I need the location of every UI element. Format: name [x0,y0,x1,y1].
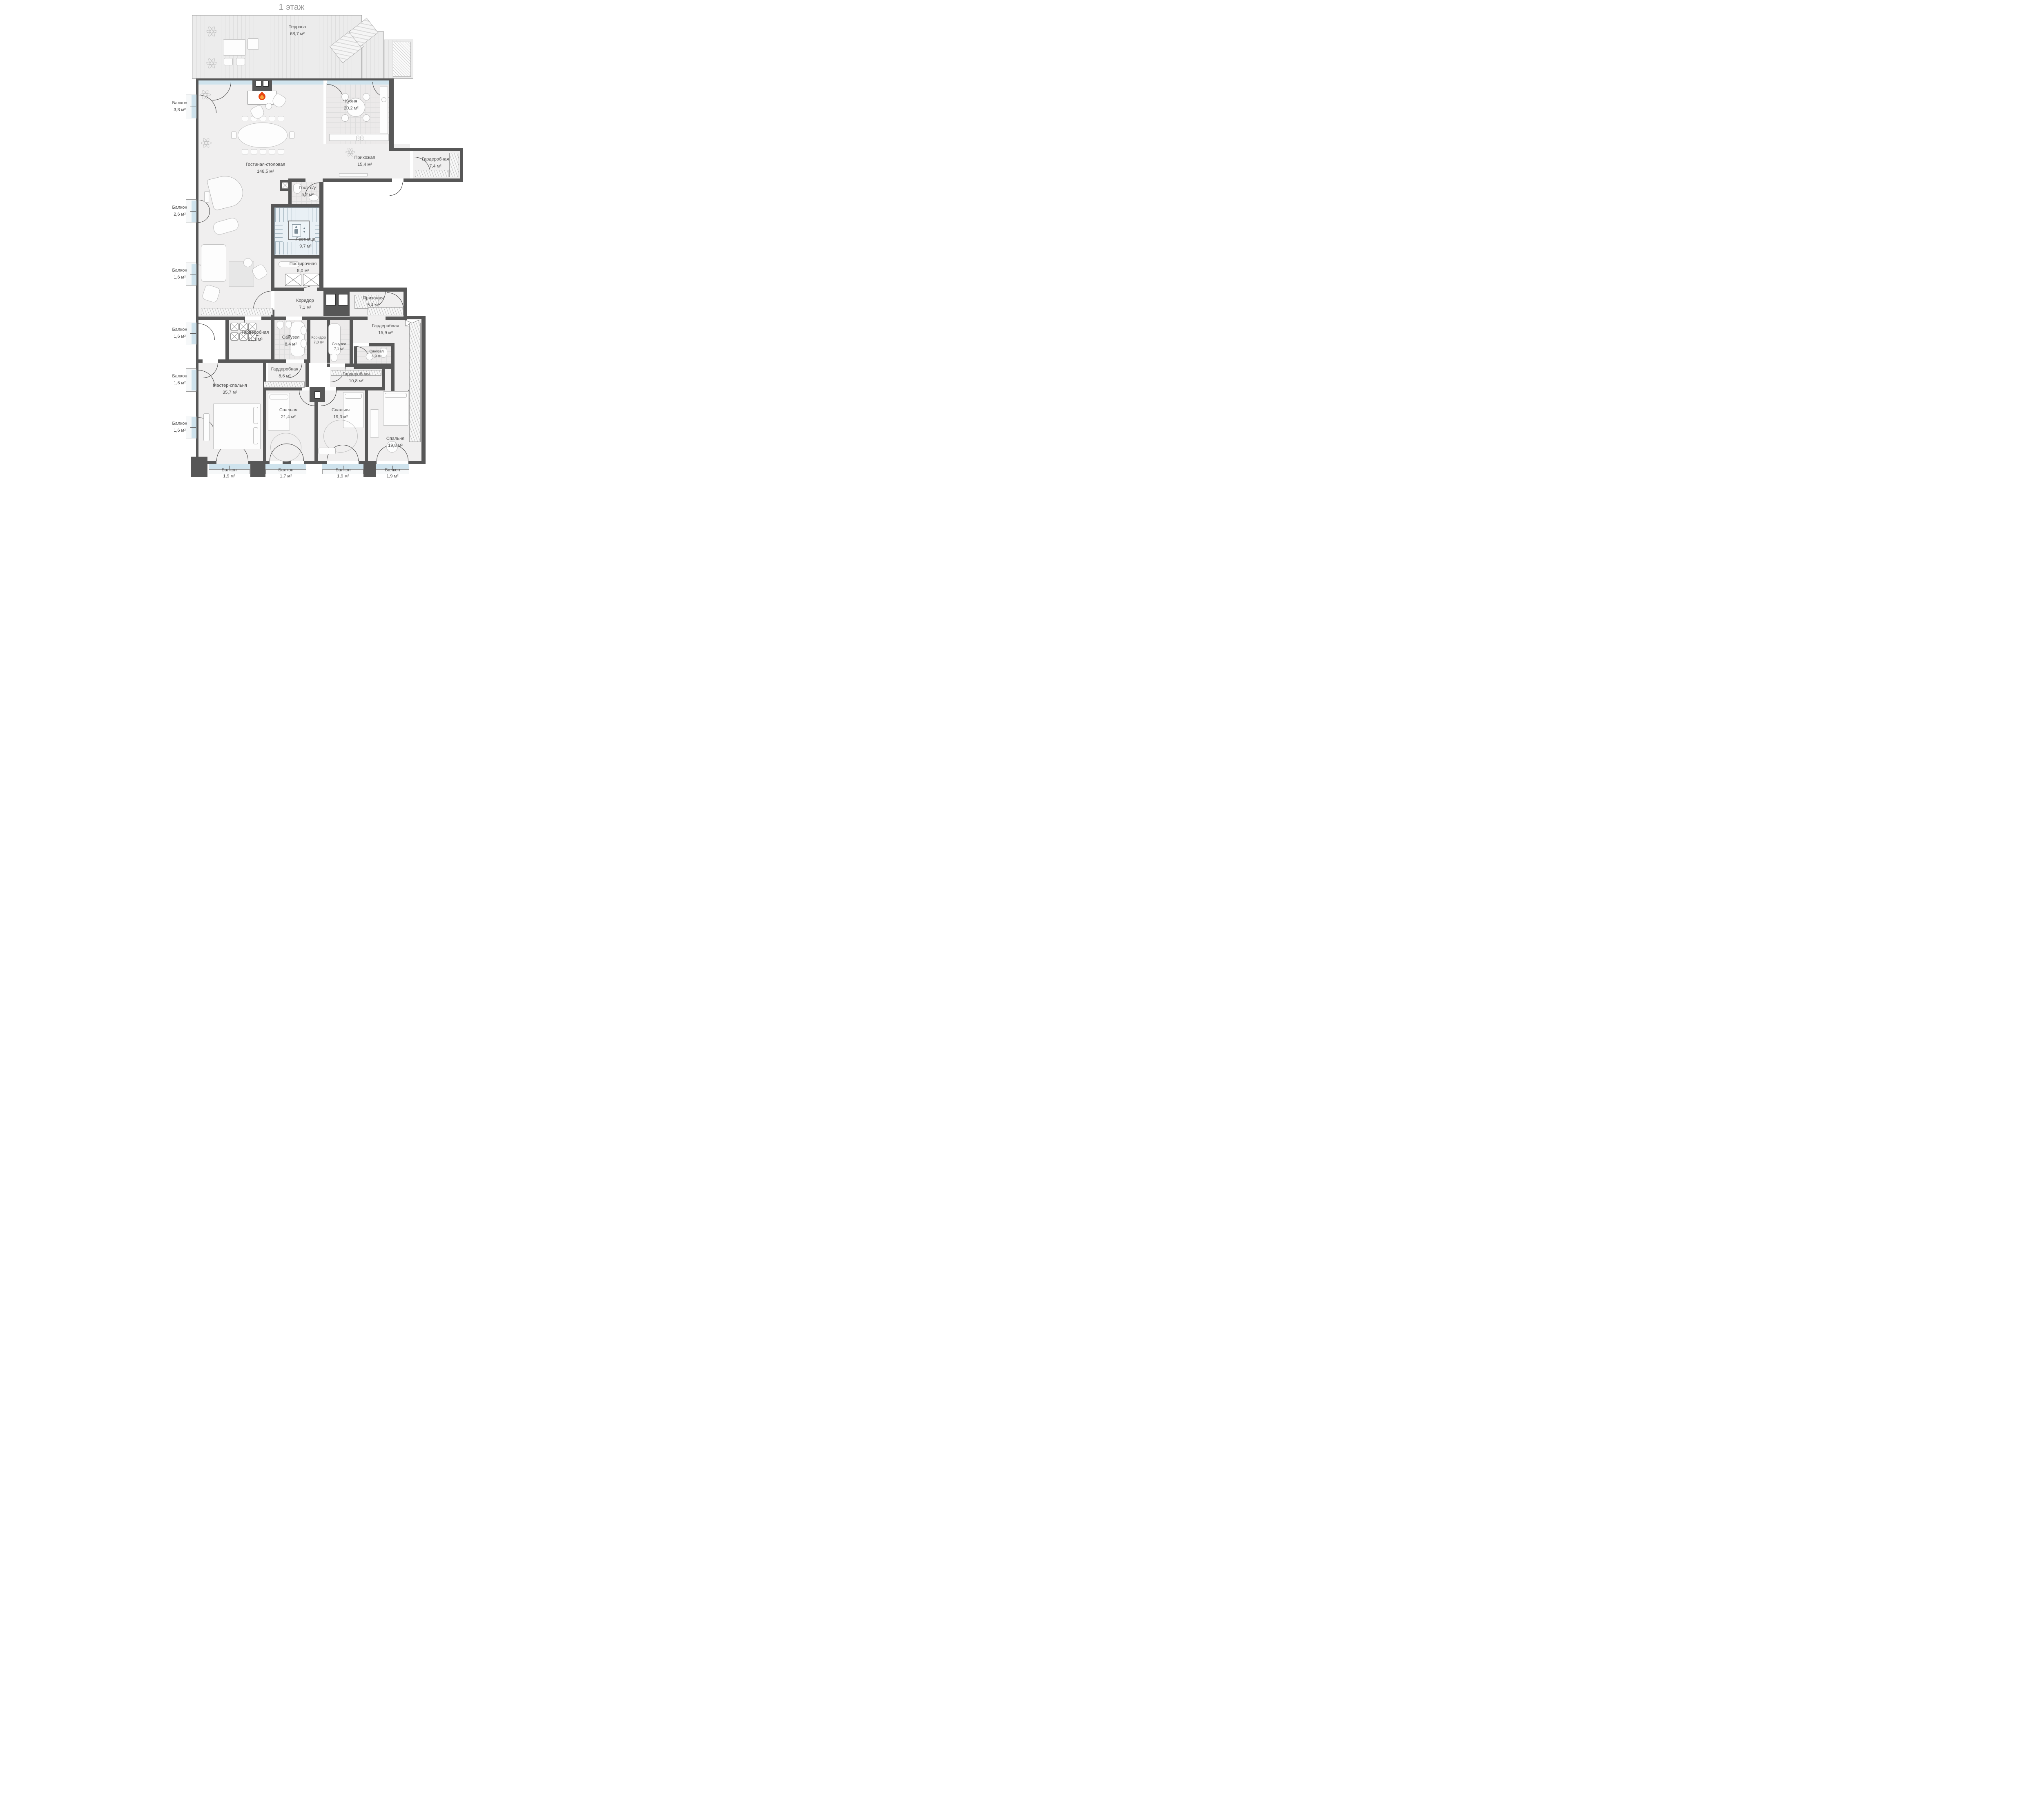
wall [460,148,463,182]
coffee-table [243,258,252,267]
dining-chair [260,149,266,154]
washer [285,274,301,286]
balcony-label: Балкон3,8 м² [172,100,187,113]
plant-icon [346,147,355,157]
room-label-wardrobe-108: Гардеробная10,8 м² [343,371,370,384]
leader-line [190,211,196,212]
wall [389,78,394,151]
wall [350,320,353,366]
plant-icon [200,89,211,100]
stove-burner [360,138,363,141]
dining-chair [242,116,248,121]
room-label-wardrobe-159: Гардеробная15,9 м² [372,323,399,336]
wall [198,359,203,363]
dining-chair [269,116,275,121]
room-label-laundry: Постирочная8,0 м² [290,261,317,274]
room-label-hallway-54: Прихожая5,4 м² [363,295,384,308]
wall [266,387,302,390]
terrace-sofa [223,39,246,56]
coffee-table [265,103,272,109]
wall [323,288,407,292]
pillow [270,395,288,399]
balcony-label: Балкон1,6 м² [172,267,187,281]
dining-chair [251,149,257,154]
room-label-bedroom-198: Спальня19,8 м² [386,435,404,449]
plant-icon [206,25,217,37]
room-label-stairs: Лестница9,7 м² [296,236,316,250]
wall [382,364,395,367]
leader-line [190,380,196,380]
stair-treads [275,222,283,242]
dining-chair [242,149,248,154]
wall [271,255,323,259]
kitchen-chair [363,114,370,122]
wall [391,148,463,151]
room-label-corridor-70: Коридор7,0 м² [311,335,326,345]
plant-icon [206,57,217,69]
room-label-bathroom-49: Санузел4,9 м² [369,349,383,359]
wardrobe-hatch [264,381,305,388]
wall [261,317,286,320]
wall [271,207,274,291]
dining-chair [269,149,275,154]
sofa [201,244,226,282]
wall [291,178,305,182]
desk [370,409,379,438]
dining-chair [289,132,294,139]
pillow [385,393,407,398]
shaft-niche [338,294,348,306]
door-arc-entry [390,183,403,196]
wall [196,78,392,80]
terrace-table [247,38,259,50]
wardrobe-hatch [237,308,273,315]
wall [307,320,310,363]
bench [203,413,210,441]
duct-xbox [282,182,288,189]
wall [365,390,368,464]
fireplace-inner [263,81,269,87]
wall [323,317,368,320]
leader-line [190,274,196,274]
wall [327,364,330,367]
page-title: 1 этаж [279,2,305,12]
toilet [331,354,337,362]
console [339,173,368,176]
room-label-bathroom-71: Санузел7,1 м² [332,341,346,351]
wardrobe-hatch [409,323,421,442]
shaft-niche [326,294,336,306]
wall [323,178,392,182]
wall [271,320,274,359]
piano-bench [204,191,209,203]
balcony-door-arc [198,323,215,340]
wardrobe-hatch [368,307,403,315]
balcony-label: Балкон1,9 м² [336,467,351,480]
leader-line [190,427,196,428]
wall [263,363,266,464]
plant-icon [201,137,212,148]
toilet [277,321,283,329]
room-label-wardrobe-211: Гардеробная21,1 м² [242,329,269,343]
balcony-label: Балкон1,6 м² [172,373,187,386]
dining-chair [278,149,284,154]
balcony-label: Балкон1,7 м² [279,467,294,480]
wardrobe-hatch [201,308,235,315]
room-label-master: Мастер-спальня35,7 м² [213,382,247,396]
leader-line [190,333,196,334]
room-label-bathroom-84: Санузел8,4 м² [282,334,300,348]
pillow [345,394,362,399]
balcony-label: Балкон1,6 м² [172,420,187,434]
dining-chair [278,116,284,121]
room-label-wardrobe-74: Гардеробная7,4 м² [422,156,449,170]
wall [386,317,407,320]
kitchen-chair [341,114,349,122]
room-label-guest-wc: Гост. с/у5,2 м² [299,185,316,198]
room-label-hallway-15: Прихожая15,4 м² [354,154,375,168]
terrace-chair [224,58,233,65]
room-label-bedroom-193: Спальня19,3 м² [332,407,350,420]
wall [302,317,323,320]
terrace-hedge [393,42,411,77]
wall [266,359,286,363]
wall [271,204,323,207]
sink [301,339,307,348]
wall [421,319,426,464]
balcony-label: Балкон2,6 м² [172,204,187,218]
wall [403,316,426,319]
dining-table [238,123,288,148]
room-label-kitchen: Кухня20,2 м² [344,98,359,112]
fireplace-inner [256,81,261,87]
sink [301,326,307,335]
window-band [272,80,323,85]
wall [403,178,463,182]
stove-burner [356,138,359,141]
wall [408,461,426,464]
wall [317,288,323,291]
balcony-label: Балкон1,9 м² [385,467,400,480]
wardrobe-hatch [415,170,448,177]
floor-plan: 1 этаж ▲▼ [0,0,638,480]
kitchen-chair [363,93,370,100]
balcony-label: Балкон1,9 м² [222,467,237,480]
bidet [286,321,292,328]
wall [225,320,229,359]
shaft-niche [314,391,320,399]
wall [218,359,266,363]
stair-treads [275,208,323,222]
wall [336,387,385,390]
kitchen-counter [380,87,388,134]
dining-chair [231,132,236,139]
wall-corner-block [191,457,207,477]
pillow [253,407,258,424]
wall [369,343,395,346]
wall [304,359,309,363]
wall [319,182,323,291]
shelf-box [230,332,239,341]
wall [271,288,304,291]
leader-line [190,107,196,107]
room-label-living: Гостиная-столовая148,5 м² [246,161,285,175]
room-label-wardrobe-86: Гардеробная8,6 м² [271,366,299,379]
room-label-corridor-71: Коридор7,1 м² [296,297,314,311]
kitchen-sink [381,97,386,102]
room-label-terrace: Терраса68,7 м² [289,24,306,37]
desk [319,448,336,454]
wall [305,363,309,387]
shelf-box [230,323,239,331]
pillow [253,427,258,444]
rug [270,433,301,462]
wall [403,292,407,319]
wall [198,317,245,320]
balcony-label: Балкон1,6 м² [172,326,187,340]
terrace-chair [236,58,245,65]
wardrobe-hatch [449,153,459,177]
washer [303,274,319,286]
room-label-bedroom-214: Спальня21,4 м² [279,407,297,420]
